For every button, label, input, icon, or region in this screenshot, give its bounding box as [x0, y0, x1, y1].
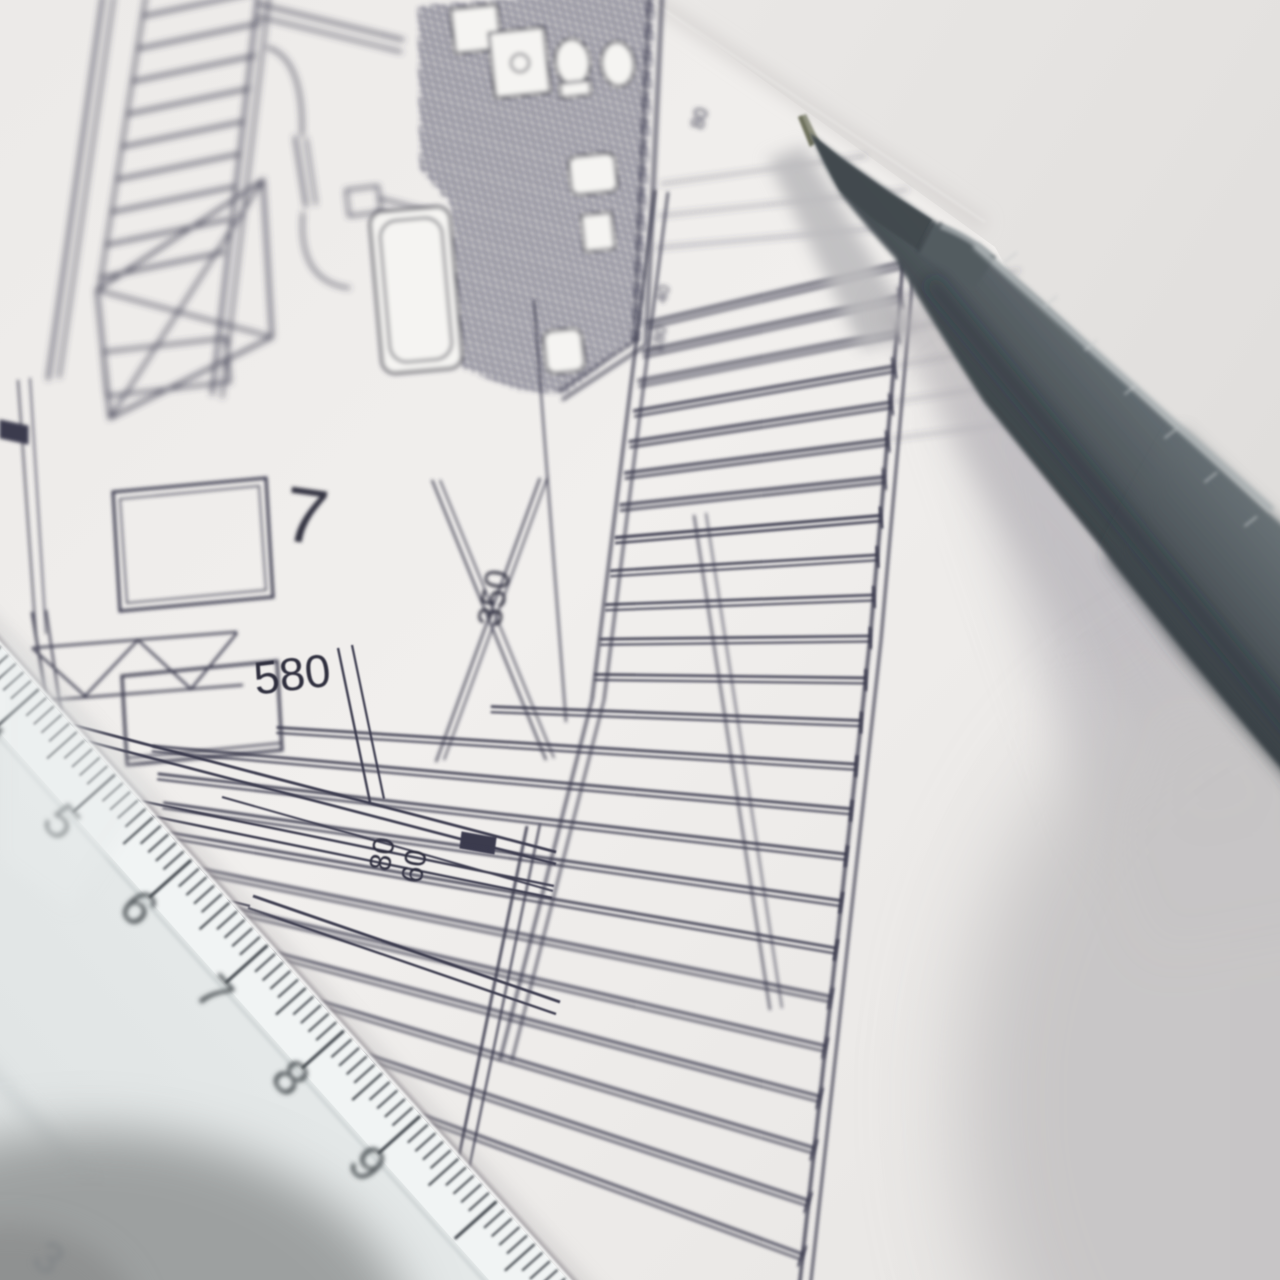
svg-text:580: 580 [251, 644, 334, 705]
